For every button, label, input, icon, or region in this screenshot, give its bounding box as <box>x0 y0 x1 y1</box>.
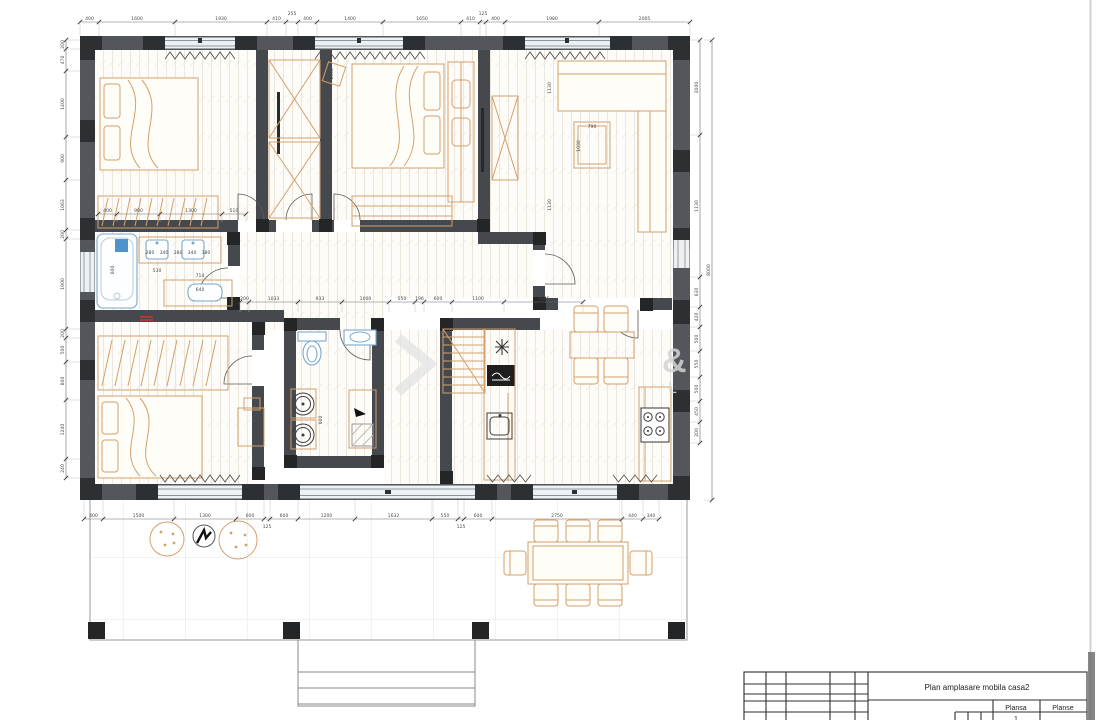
dim-label: 900 <box>134 208 143 214</box>
dim-label: 900 <box>60 154 66 163</box>
stove-cooktop <box>641 408 669 442</box>
dim-label: 200 <box>60 40 66 49</box>
dim-label: 1500 <box>133 513 145 519</box>
dim-label: 550 <box>398 296 407 302</box>
dim-label: 1980 <box>546 16 558 22</box>
sheet-col-planse: Planse <box>1052 705 1074 712</box>
sink-small-bath <box>344 330 376 345</box>
ceiling-lamp-icon <box>495 339 509 355</box>
dim-label: 196 <box>415 296 424 302</box>
dim-label: 340 <box>647 513 656 519</box>
dim-label: 1033 <box>268 296 280 302</box>
terrace-column <box>283 622 300 639</box>
living-mirror-door <box>481 108 484 172</box>
dim-label: 255 <box>288 11 297 17</box>
watermark-letter: L <box>668 380 677 397</box>
dim-label: 600 <box>246 513 255 519</box>
dim-label: 600 <box>434 296 443 302</box>
dim-label: 1063 <box>60 199 66 211</box>
terrace-steps <box>298 640 475 706</box>
dim-label: 600 <box>280 513 289 519</box>
dim-label: 1000 <box>360 296 372 302</box>
dim-label: 1900 <box>60 278 66 290</box>
window-top-2 <box>315 38 403 49</box>
dim-label: 530 <box>153 268 162 274</box>
dim-label: 500 <box>694 385 700 394</box>
window-right <box>674 240 690 268</box>
dim-label: 400 <box>103 208 112 214</box>
dim-label: 440 <box>628 513 637 519</box>
window-top-3 <box>525 38 610 49</box>
dim-label: 125 <box>479 11 488 17</box>
dim-chain-right: 20001130630420500550500450200 <box>690 38 702 445</box>
terrace-sliding-door-hall <box>300 486 475 499</box>
terrace-sliding-door-kitchen <box>533 486 617 499</box>
window-top-1 <box>165 38 235 49</box>
dim-label: 1930 <box>215 16 227 22</box>
page-edge <box>1088 0 1095 720</box>
dim-label: 125 <box>457 524 466 530</box>
window-left <box>81 252 95 292</box>
dim-label: 1200 <box>321 513 333 519</box>
dim-label: 714 <box>196 273 205 279</box>
dim-label: 340 <box>188 250 197 256</box>
dim-label: 400 <box>303 16 312 22</box>
dim-label: 1600 <box>131 16 143 22</box>
window-bottom-bedroom3 <box>158 486 242 499</box>
dim-label: 200 <box>60 230 66 239</box>
dim-label: 790 <box>588 124 597 130</box>
dim-label: 550 <box>694 360 700 369</box>
north-arrow-icon <box>193 525 215 547</box>
dim-label: 1650 <box>416 16 428 22</box>
dim-label: 450 <box>694 407 700 416</box>
dim-label: 1632 <box>388 513 400 519</box>
dim-label: 500 <box>694 335 700 344</box>
sheet-col-plansa: Plansa <box>1005 705 1027 712</box>
dim-label: 340 <box>160 250 169 256</box>
dim-label: 1400 <box>344 16 356 22</box>
shower-head-icon <box>115 239 128 252</box>
dim-label: 630 <box>694 288 700 297</box>
floor-plan-drawing: 4001600193041025540014001650410125400198… <box>0 0 1099 720</box>
dim-label: 640 <box>196 287 205 293</box>
dim-label: 400 <box>491 16 500 22</box>
dim-label: 200 <box>694 428 700 437</box>
dim-label: 8000 <box>706 264 712 276</box>
dim-label: 410 <box>466 16 475 22</box>
dim-label: 600 <box>474 513 483 519</box>
floor-plan-sheet: 4001600193041025540014001650410125400198… <box>0 0 1099 720</box>
dim-label: 400 <box>85 16 94 22</box>
dim-label: 200 <box>60 329 66 338</box>
dim-label: 600 <box>318 416 324 425</box>
dim-label: 125 <box>263 524 272 530</box>
dim-label: 1500 <box>329 68 335 80</box>
dim-label: 1300 <box>199 513 211 519</box>
dim-label: 933 <box>316 296 325 302</box>
bed-1 <box>100 78 198 170</box>
title-block: Plan amplasare mobila casa2 Plansa Plans… <box>744 672 1087 720</box>
dim-label: 510 <box>230 208 239 214</box>
dim-label: 400 <box>89 513 98 519</box>
dim-label: 1130 <box>547 82 553 94</box>
bathtub <box>97 234 137 308</box>
dim-label: 1130 <box>547 199 553 211</box>
bed-2 <box>352 64 444 168</box>
dim-label: 200 <box>240 296 249 302</box>
dim-label: 240 <box>60 464 66 473</box>
dim-label: 2750 <box>551 513 563 519</box>
dim-label: 2000 <box>694 82 700 94</box>
dim-label: 500 <box>60 346 66 355</box>
dim-label: 1030 <box>576 140 582 152</box>
dim-chain-top: 4001600193041025540014001650410125400198… <box>78 11 692 36</box>
dim-label: 420 <box>694 313 700 322</box>
sofa-right <box>638 111 666 232</box>
dim-chain-right-outer: 8000 <box>704 38 714 502</box>
terrace-column <box>472 622 489 639</box>
dim-label: 280 <box>174 250 183 256</box>
dim-label: 410 <box>272 16 281 22</box>
dim-label: 1400 <box>60 98 66 110</box>
dim-chain-left: 2004701400900106320019002005008001240240 <box>60 38 80 480</box>
dim-label: 1665 <box>538 296 550 302</box>
sofa-top <box>558 61 666 111</box>
watermark-ampersand: & <box>662 342 687 380</box>
terrace-column <box>668 622 685 639</box>
dim-label: 800 <box>60 377 66 386</box>
dim-label: 1100 <box>472 296 484 302</box>
dim-label: 1130 <box>694 200 700 212</box>
dim-label: 2005 <box>639 16 651 22</box>
terrace <box>88 500 687 706</box>
dim-label: 1300 <box>185 208 197 214</box>
dim-label: 1240 <box>60 424 66 436</box>
sheet-number: 1 <box>1014 716 1018 720</box>
sheet-title: Plan amplasare mobila casa2 <box>925 683 1030 692</box>
dim-label: 600 <box>110 266 116 275</box>
oven-appliance <box>487 365 515 386</box>
terrace-column <box>88 622 105 639</box>
dim-label: 180 <box>202 250 211 256</box>
dim-label: 470 <box>60 56 66 65</box>
dim-label: 550 <box>441 513 450 519</box>
bed-3 <box>98 396 202 478</box>
dim-label: 280 <box>146 250 155 256</box>
